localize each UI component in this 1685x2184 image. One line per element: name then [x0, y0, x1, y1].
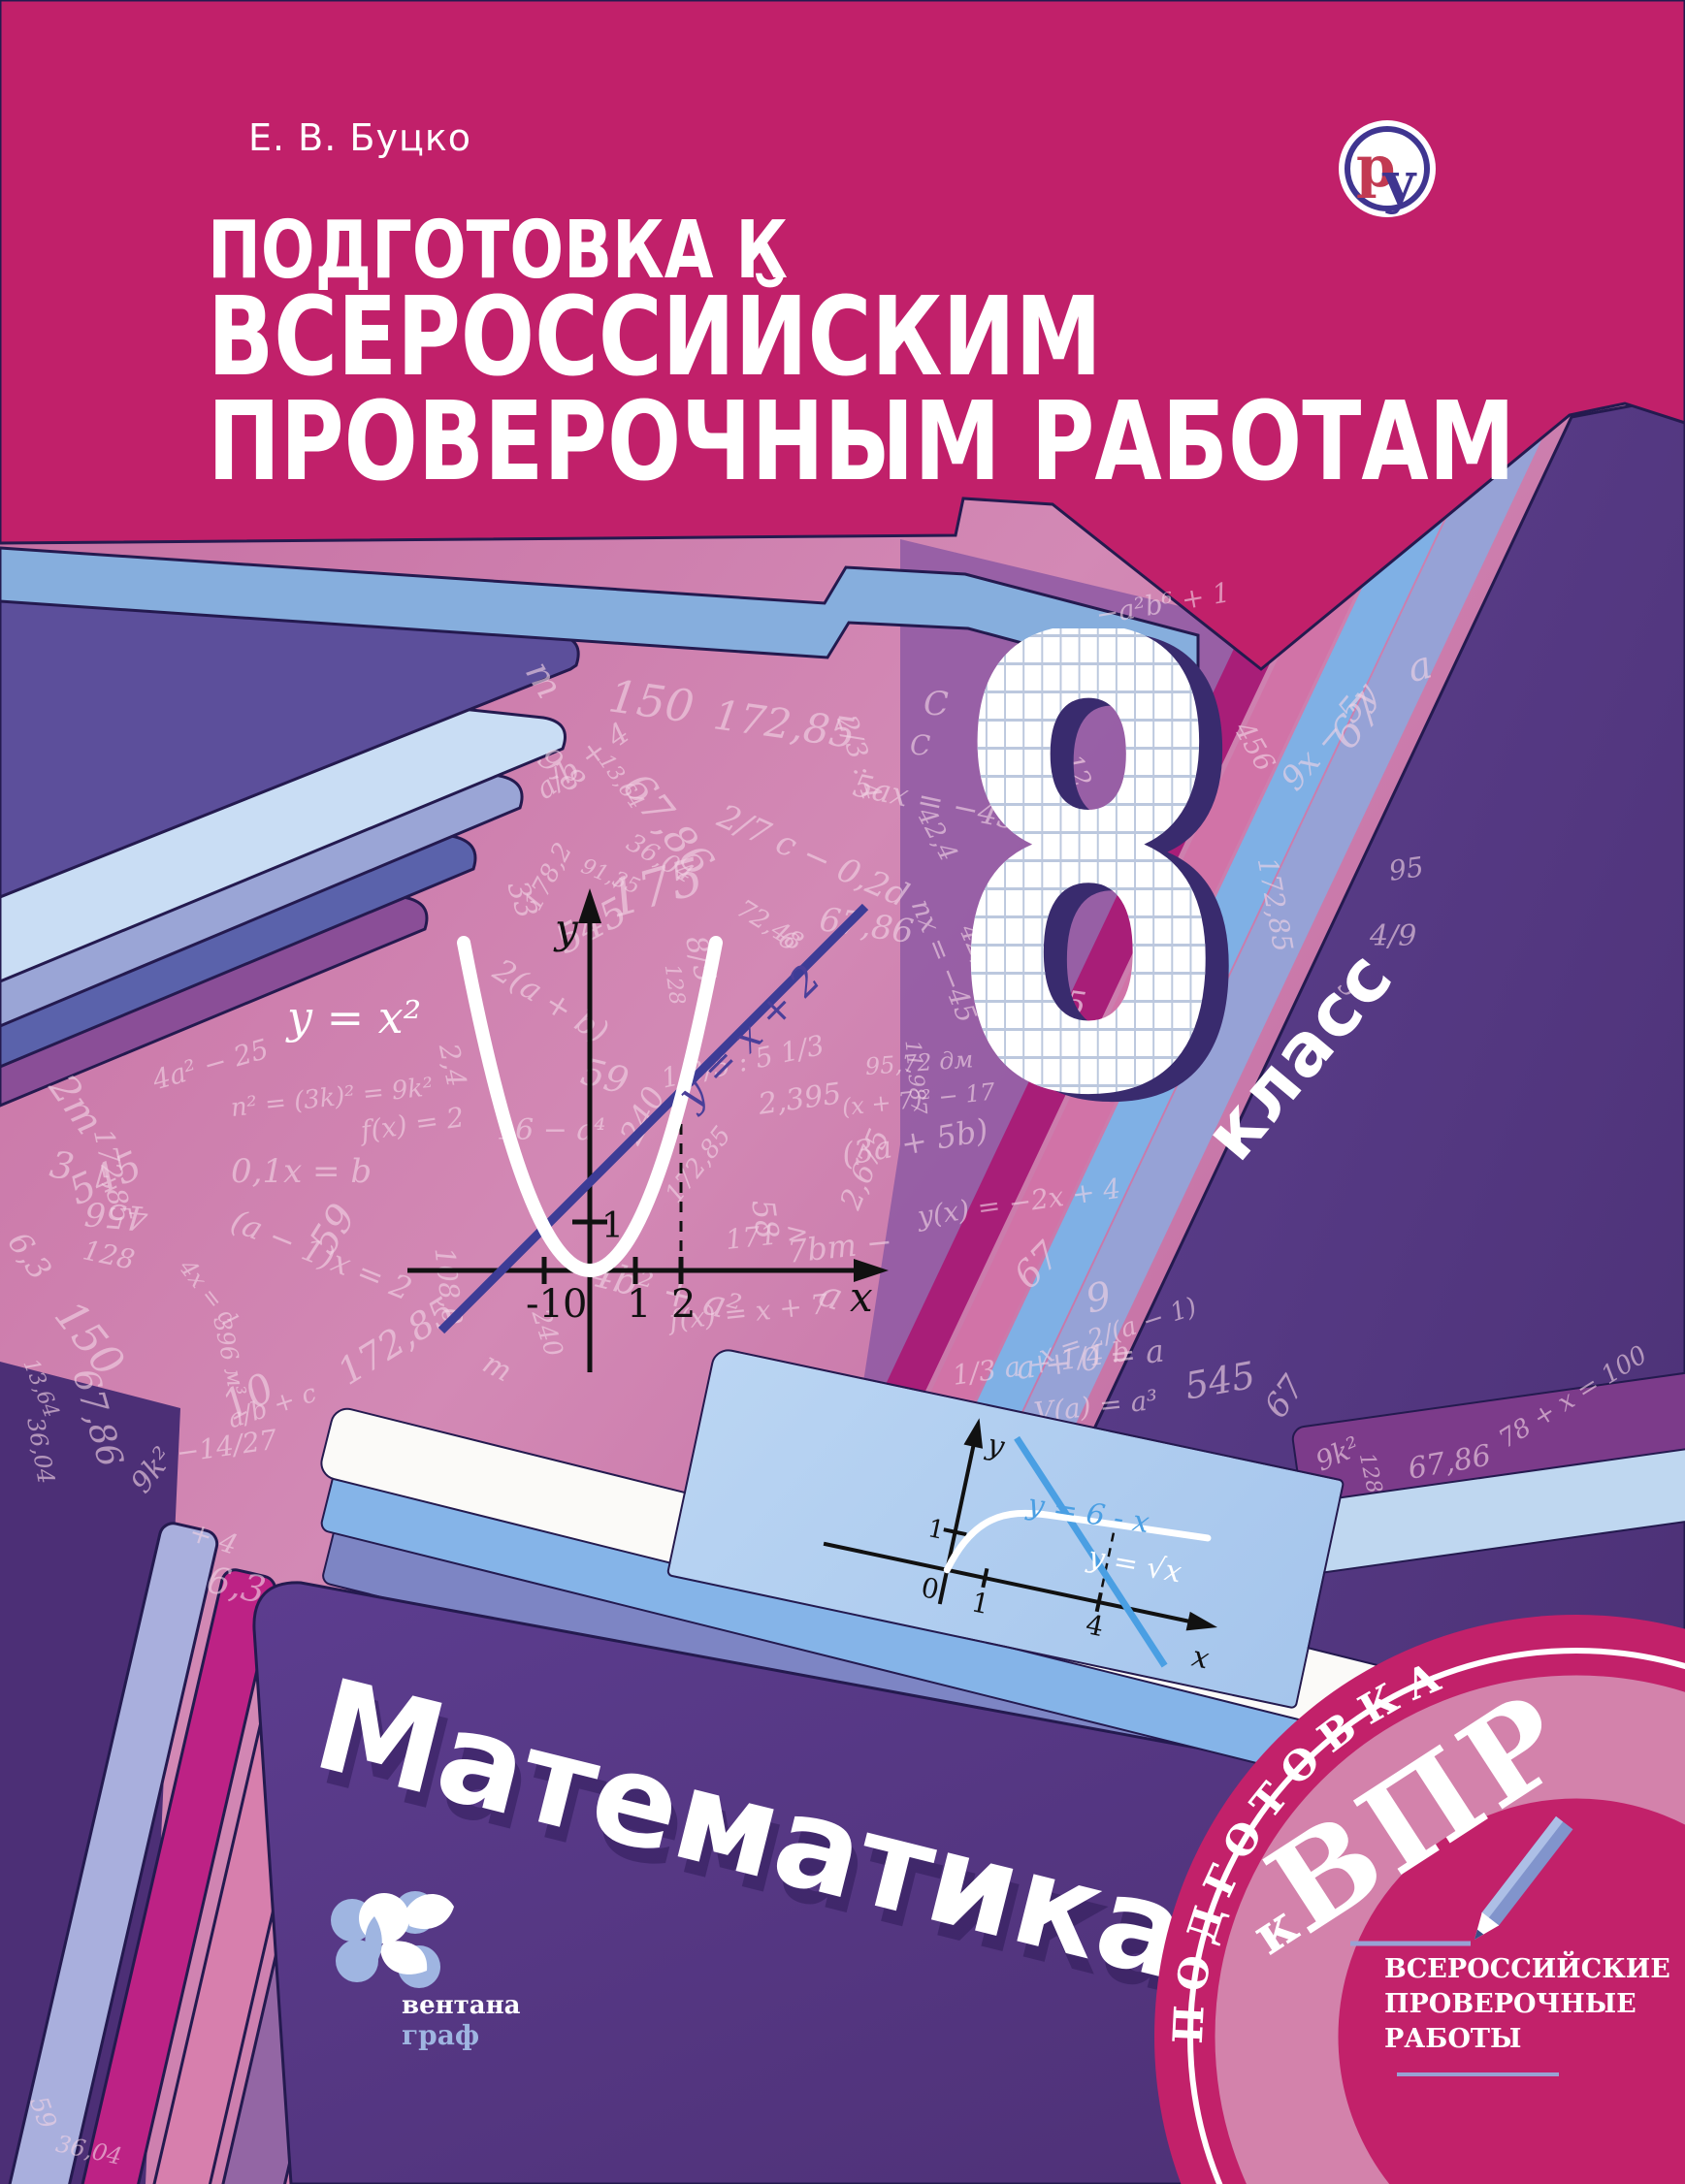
y-axis-label: y [983, 1428, 1009, 1464]
publisher-name-1: вентана [402, 1991, 521, 2020]
book-cover: m1509,813,6467,86172,852/3 : 4Ca/b + 436… [0, 0, 1685, 2184]
publisher-name-2: граф [402, 2019, 479, 2051]
vpr-badge: ПОДГОТОВКА к ВПР ВСЕРОССИЙСКИЕ ПРОВЕРОЧН… [1106, 1566, 1685, 2184]
tick-label: 4 [1083, 1608, 1106, 1643]
tick-label: 1 [925, 1514, 947, 1546]
badge-text-line1: ВСЕРОССИЙСКИЕ [1384, 1950, 1670, 1984]
line-label: y = 6 - x [1023, 1488, 1151, 1541]
y-arrow-icon [963, 1416, 988, 1449]
tick-label: 1 [969, 1586, 992, 1621]
publisher-logo: вентана граф [320, 1881, 592, 2075]
publisher-logo-icon [331, 1891, 454, 1988]
tick-label: 0 [919, 1571, 942, 1606]
badge-text-line3: РАБОТЫ [1384, 2024, 1521, 2054]
grade-number: 8 [946, 628, 1231, 1112]
badge-text-line2: ПРОВЕРОЧНЫЕ [1384, 1989, 1636, 2019]
y-axis [940, 1437, 976, 1604]
